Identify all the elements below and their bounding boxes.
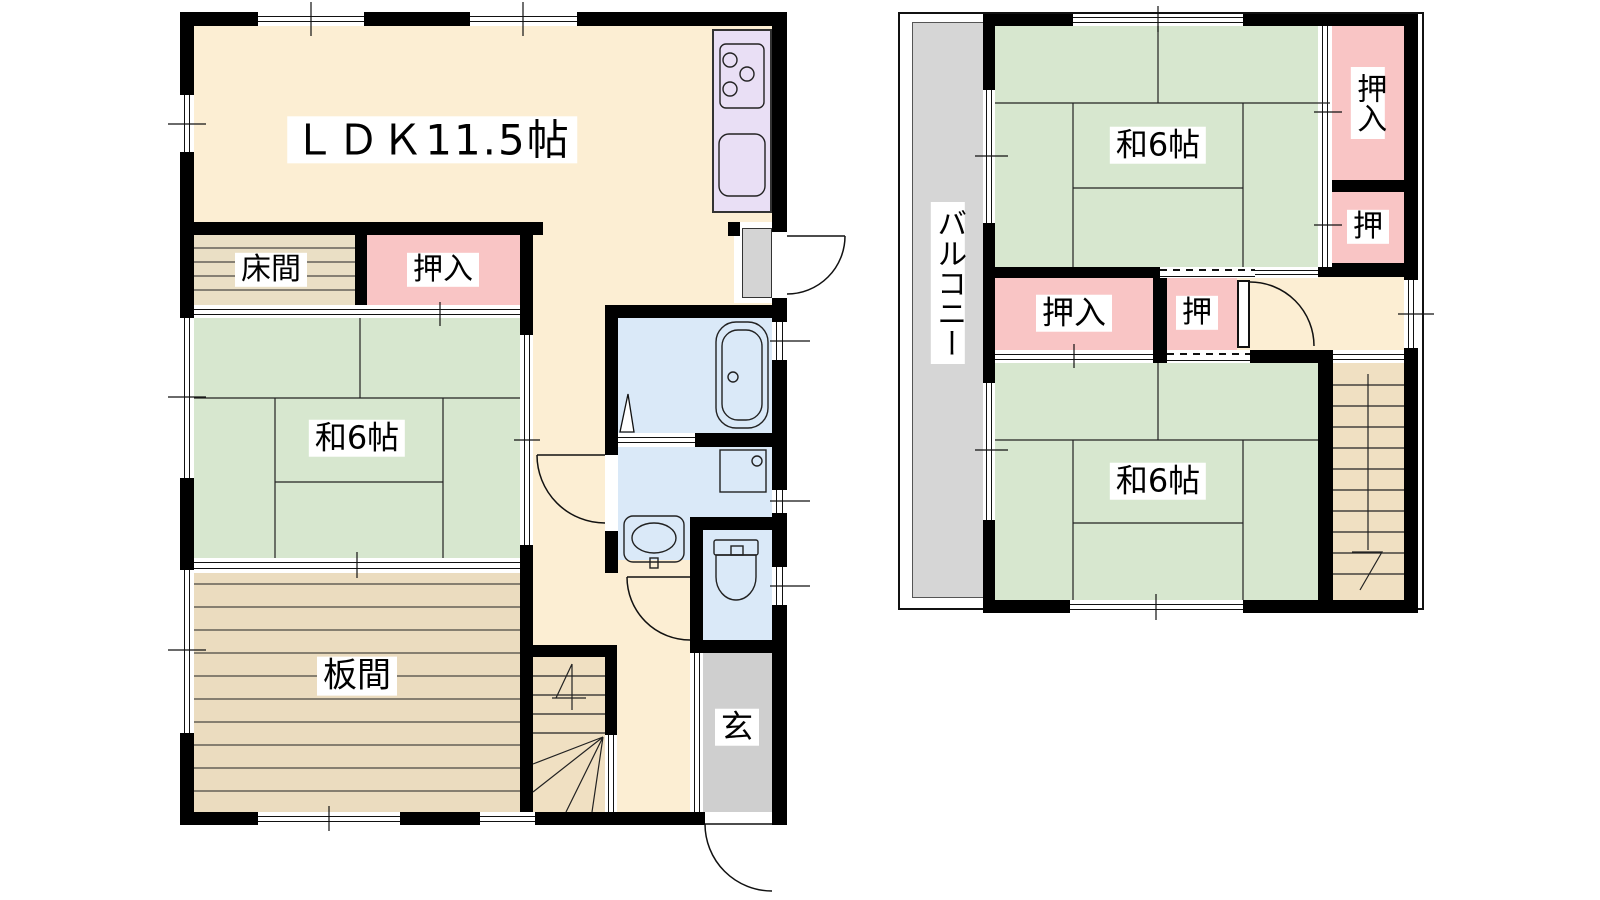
1f-wall-ldk-row xyxy=(194,222,543,235)
sliding-door-washitsu-itanoma xyxy=(194,558,520,573)
stairs-1f xyxy=(533,657,605,812)
entry-door-arc xyxy=(705,824,772,891)
1f-wall-toilet-left xyxy=(690,530,703,640)
1f-wall-tokonoma-divider xyxy=(355,235,367,305)
window xyxy=(258,812,400,825)
window xyxy=(180,95,194,152)
2f-wall-closet-corner xyxy=(1318,263,1418,277)
2f-wall-mid-bottom-b xyxy=(1250,350,1318,363)
entry-door-opening xyxy=(705,812,772,825)
window xyxy=(180,318,194,478)
2f-wall-oshiire-mid-right xyxy=(1153,267,1167,363)
sliding-door-oshiire-mid xyxy=(995,350,1153,363)
label-ldk: ＬＤＫ11.5帖 xyxy=(287,116,577,163)
closet-sliding-front xyxy=(1318,26,1332,267)
sliding-door-2f-hall-top xyxy=(1255,267,1318,278)
1f-wall-bath-left xyxy=(605,318,618,455)
floor-plan: ＬＤＫ11.5帖 床間 押入 和6帖 板間 玄 バルコニー 和6帖 押入 押 押… xyxy=(0,0,1600,900)
window xyxy=(772,322,787,360)
window xyxy=(772,567,787,605)
label-washitsu-2f-bottom: 和6帖 xyxy=(1110,463,1206,500)
open-closet-top-dashed xyxy=(1160,267,1255,278)
washroom-door-opening xyxy=(605,455,618,531)
sliding-door-stairs-entry xyxy=(1333,350,1404,363)
window xyxy=(470,12,577,26)
1f-wall-toilet-top xyxy=(690,517,772,530)
open-closet-bottom-dashed xyxy=(1167,350,1250,363)
1f-wall-toilet-bottom xyxy=(690,640,772,653)
label-itanoma: 板間 xyxy=(317,657,397,696)
genkan-step-edge xyxy=(690,653,703,812)
1f-wall-backdoor-stub xyxy=(728,222,740,236)
backdoor-opening xyxy=(772,232,787,298)
window xyxy=(1070,600,1243,613)
window xyxy=(983,90,995,223)
1f-wall-itanoma-right xyxy=(520,573,533,812)
2f-wall-stairs-left xyxy=(1318,363,1333,600)
1f-wall-right xyxy=(772,12,787,825)
sliding-door-stairs xyxy=(605,735,617,812)
1f-wall-hall-lower xyxy=(520,545,533,573)
window xyxy=(772,490,787,513)
window xyxy=(983,383,995,520)
window xyxy=(1073,14,1243,26)
kitchen-counter xyxy=(712,29,772,213)
backdoor-arc xyxy=(787,236,845,294)
washroom-sink-nook xyxy=(618,530,690,560)
1f-wall-bath-top xyxy=(605,305,772,318)
label-oshi-2f-mid: 押 xyxy=(1176,296,1218,330)
sliding-door-washitsu-hall xyxy=(520,335,533,545)
2f-wall-mid-top xyxy=(983,267,1160,278)
label-genkan: 玄 xyxy=(715,709,759,746)
room-bathroom xyxy=(618,318,772,433)
1f-wall-wash-left xyxy=(605,531,618,573)
1f-wall-bath-wash-divider xyxy=(695,433,772,447)
label-tokonoma: 床間 xyxy=(235,253,307,287)
bathroom-door-opening xyxy=(618,433,695,447)
2f-wall-stair-stub xyxy=(1318,350,1333,363)
2f-hall-door-leaf xyxy=(1237,280,1250,348)
label-oshi-2f-right: 押 xyxy=(1347,210,1389,244)
1f-wall-hall-upper xyxy=(520,222,533,335)
label-washitsu-1f: 和6帖 xyxy=(309,420,405,457)
window xyxy=(258,12,364,26)
label-oshiire-2f-mid: 押入 xyxy=(1036,295,1112,332)
label-balcony: バルコニー xyxy=(931,202,965,364)
fusuma-sliding-door xyxy=(194,305,520,318)
window xyxy=(1404,280,1418,348)
window xyxy=(480,812,535,825)
backdoor-step xyxy=(742,228,772,298)
label-washitsu-2f-top: 和6帖 xyxy=(1110,127,1206,164)
room-toilet xyxy=(703,530,772,640)
2f-wall-mid-bottom-a xyxy=(1153,350,1167,363)
label-oshiire-2f-right: 押入 xyxy=(1351,67,1385,139)
1f-wall-stairs-right xyxy=(605,645,617,735)
label-oshiire-1f: 押入 xyxy=(407,253,479,287)
2f-wall-closet-divider xyxy=(1332,180,1404,192)
window xyxy=(180,570,194,733)
stairs-2f xyxy=(1333,363,1404,600)
